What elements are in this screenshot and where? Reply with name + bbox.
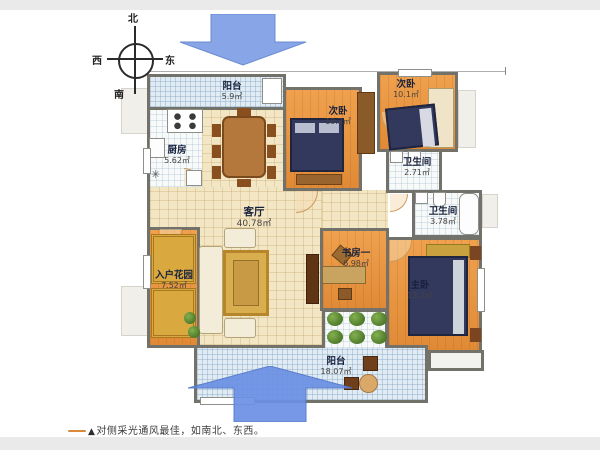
blanket-fold: [453, 260, 464, 334]
closet-bottom-right: [428, 350, 484, 371]
dining-chair: [267, 145, 276, 158]
room-name: 入户花园: [155, 270, 193, 281]
room-area: 7.52㎡: [155, 281, 193, 291]
top-border-strip: [0, 0, 600, 10]
room-area: 5.62㎡: [164, 156, 190, 166]
toilet-icon: [433, 192, 446, 207]
label-bedroom-right: 次卧 10.1㎡: [393, 79, 419, 100]
washer-icon: ✳: [151, 168, 160, 181]
stove-icon: [167, 109, 203, 133]
room-area: 40.78㎡: [237, 219, 272, 230]
sink-icon: [390, 151, 403, 163]
bed-bedroom-right: [385, 104, 439, 151]
pillow: [295, 123, 315, 133]
room-area: 3.78㎡: [429, 217, 458, 227]
coffee-table: [233, 260, 259, 306]
room-area: 10.1㎡: [393, 90, 419, 100]
room-name: 厨房: [164, 145, 190, 156]
desk-chair: [338, 288, 352, 300]
room-name: 卫生间: [429, 206, 458, 217]
nightstand: [470, 246, 481, 260]
label-bath-big: 卫生间 3.78㎡: [429, 206, 458, 227]
label-balcony-top: 阳台 5.9㎡: [222, 81, 243, 102]
compass-icon: 北 西 东 南: [95, 12, 175, 98]
room-name: 主卧: [407, 280, 433, 291]
balcony-cabinet: [262, 78, 282, 104]
dining-table: [222, 116, 266, 178]
room-corridor: [322, 190, 388, 230]
label-living: 客厅 40.78㎡: [237, 206, 272, 229]
balcony-chair: [363, 356, 378, 371]
fridge-icon: [149, 138, 165, 158]
dining-chair: [212, 145, 221, 158]
plant-icon: [184, 312, 196, 324]
armchair: [224, 318, 256, 338]
compass-south-label: 南: [114, 86, 124, 101]
room-name: 次卧: [393, 79, 419, 90]
window: [143, 255, 151, 289]
bench-bedroom-mid: [296, 174, 342, 185]
room-area: 10.2㎡: [325, 117, 351, 127]
plant-icon: [188, 326, 200, 338]
dining-chair: [237, 108, 251, 116]
bottom-border-strip: [0, 437, 600, 450]
plant-icon: [327, 312, 343, 326]
plant-icon: [371, 330, 387, 344]
label-kitchen: 厨房 5.62㎡: [164, 145, 190, 166]
arrow-up-icon: [186, 366, 354, 422]
plant-icon: [349, 330, 365, 344]
room-name: 卫生间: [403, 157, 432, 168]
dining-chair: [212, 124, 221, 137]
room-name: 书房一: [342, 248, 371, 259]
plant-icon: [327, 330, 343, 344]
compass-north-label: 北: [128, 10, 138, 25]
window: [398, 69, 432, 77]
blanket-fold: [419, 108, 435, 147]
dimension-tick: [505, 67, 506, 75]
room-name: 阳台: [222, 81, 243, 92]
plant-icon: [349, 312, 365, 326]
dining-chair: [212, 166, 221, 179]
bay-window-left-bottom: [121, 286, 149, 336]
plant-icon: [371, 312, 387, 326]
room-name: 客厅: [237, 206, 272, 219]
window: [143, 148, 151, 174]
dining-chair: [237, 179, 251, 187]
bay-window-right-mid: [482, 194, 498, 228]
compass-circle: [118, 43, 154, 79]
compass-west-label: 西: [92, 52, 102, 67]
tv-stand: [306, 254, 319, 304]
dining-chair: [267, 124, 276, 137]
caption-accent-line: [68, 430, 86, 432]
label-bath-small: 卫生间 2.71㎡: [403, 157, 432, 178]
bay-window-right-top: [458, 90, 476, 148]
room-area: 5.9㎡: [222, 92, 243, 102]
caption: ▲对侧采光通风最佳，如南北、东西。: [88, 422, 264, 437]
room-name: 次卧: [325, 106, 351, 117]
compass-east-label: 东: [165, 52, 175, 67]
sofa: [199, 246, 223, 334]
arrow-down-icon: [178, 14, 308, 66]
room-area: 6.98㎡: [342, 259, 371, 269]
dining-chair: [267, 166, 276, 179]
label-garden: 入户花园 7.52㎡: [155, 270, 193, 291]
balcony-table: [359, 374, 378, 393]
wardrobe: [357, 92, 375, 154]
label-study: 书房一 6.98㎡: [342, 248, 371, 269]
window: [477, 268, 485, 312]
kitchen-sink-icon: [186, 170, 202, 186]
sink-icon: [415, 192, 428, 204]
bathtub-icon: [459, 193, 479, 235]
room-area: 13.2㎡: [407, 291, 433, 301]
caption-text: 对侧采光通风最佳，如南北、东西。: [96, 426, 264, 437]
label-bedroom-mid: 次卧 10.2㎡: [325, 106, 351, 127]
door-arc-bath-small: [390, 194, 408, 212]
label-master: 主卧 13.2㎡: [407, 280, 433, 301]
room-area: 2.71㎡: [403, 168, 432, 178]
nightstand: [470, 328, 481, 342]
armchair: [224, 228, 256, 248]
caption-marker: ▲: [88, 427, 95, 437]
